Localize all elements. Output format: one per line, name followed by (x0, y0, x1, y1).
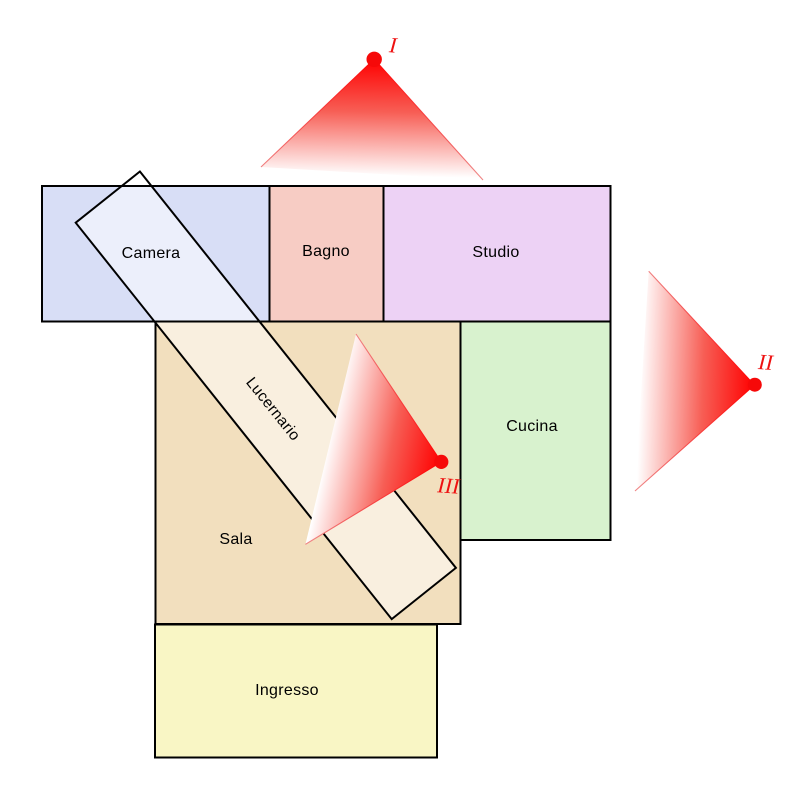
svg-text:III: III (436, 472, 462, 499)
svg-text:Ingresso: Ingresso (255, 682, 319, 699)
svg-text:I: I (387, 32, 399, 58)
svg-text:Sala: Sala (219, 531, 252, 548)
svg-text:Studio: Studio (472, 244, 519, 261)
svg-text:Cucina: Cucina (506, 418, 558, 435)
svg-text:II: II (756, 349, 775, 375)
svg-text:Bagno: Bagno (302, 243, 350, 260)
svg-text:Camera: Camera (122, 245, 181, 262)
